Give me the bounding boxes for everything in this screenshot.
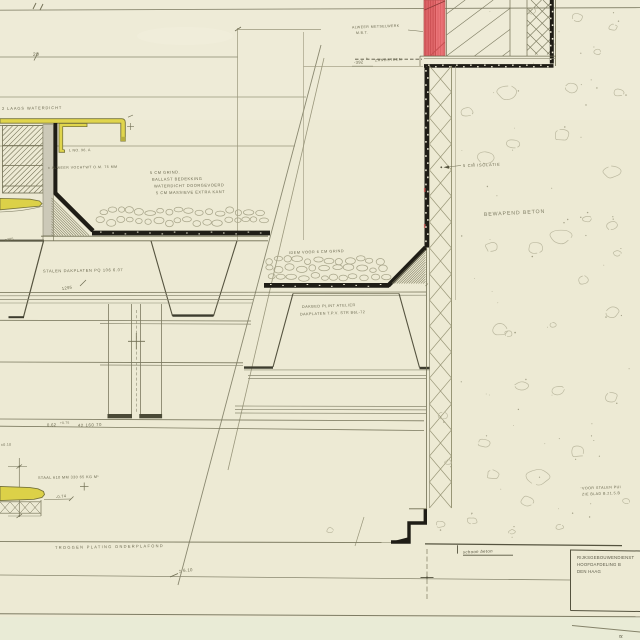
svg-text:HOOFDAFDELING B: HOOFDAFDELING B	[577, 562, 621, 567]
svg-text:+0.75: +0.75	[60, 421, 70, 425]
svg-text:5 CM GRIND.: 5 CM GRIND.	[150, 169, 180, 175]
svg-text:∝: ∝	[618, 633, 624, 640]
svg-text:BALLAST BEDEKKING: BALLAST BEDEKKING	[152, 176, 203, 182]
svg-text:RIJKSGEBOUWENDIENST: RIJKSGEBOUWENDIENST	[577, 555, 634, 560]
svg-text:0.62: 0.62	[47, 422, 57, 427]
svg-text:2 LAAGS WATERDICHT: 2 LAAGS WATERDICHT	[2, 105, 62, 111]
svg-text:42 160 70: 42 160 70	[78, 422, 102, 428]
svg-text:DEN HAAG: DEN HAAG	[577, 569, 602, 574]
svg-text:+: +	[366, 57, 368, 61]
svg-text:±0.10: ±0.10	[1, 443, 12, 447]
svg-text:L NO. 96. A: L NO. 96. A	[69, 148, 91, 152]
svg-text:M.B.T.: M.B.T.	[356, 31, 368, 35]
svg-text:-392: -392	[354, 59, 364, 65]
svg-text:schoon beton: schoon beton	[463, 548, 493, 554]
